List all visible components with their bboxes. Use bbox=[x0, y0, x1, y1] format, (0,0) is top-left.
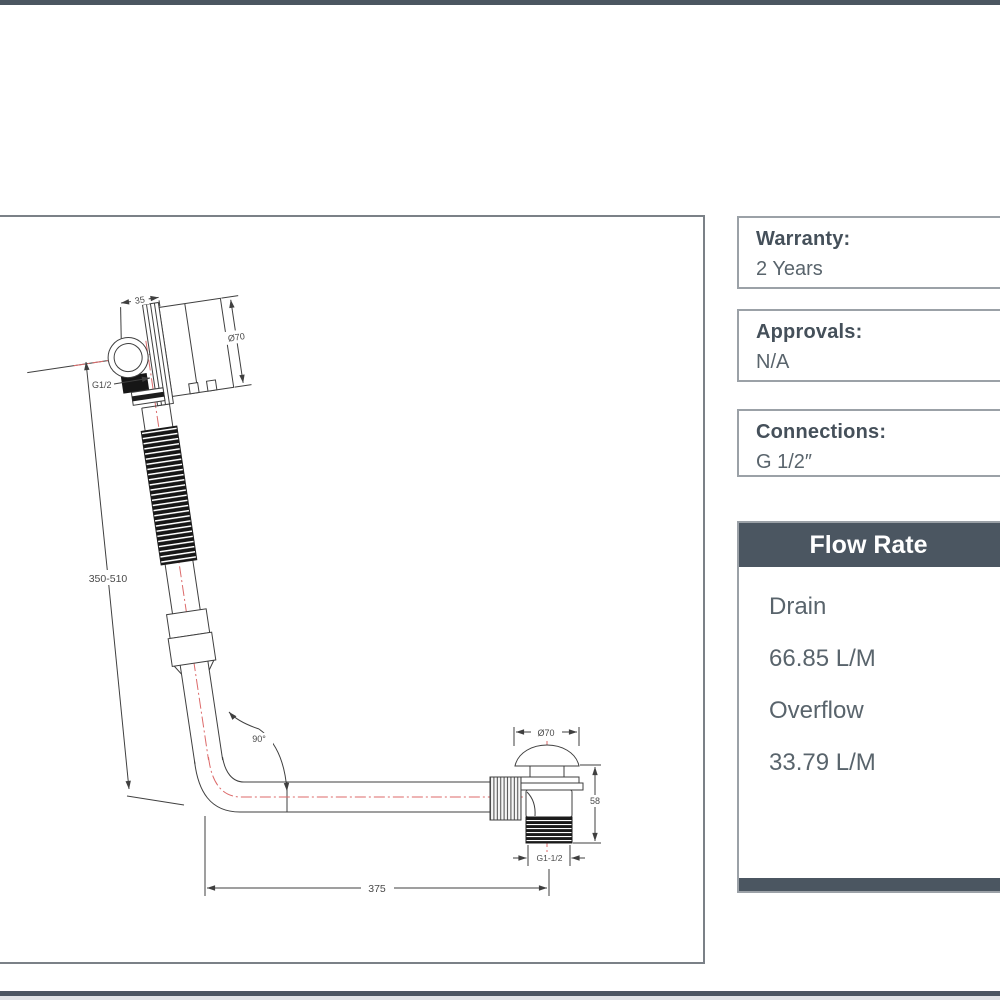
approvals-value: N/A bbox=[756, 351, 1000, 374]
approvals-label: Approvals: bbox=[756, 321, 1000, 344]
dim-35-label: 35 bbox=[134, 295, 145, 306]
knurled-nut bbox=[490, 777, 521, 820]
flow-overflow-label: Overflow bbox=[769, 697, 1000, 725]
dim-run-length: 375 bbox=[205, 816, 549, 896]
connections-box: Connections: G 1/2″ bbox=[737, 409, 1000, 477]
dim-375-label: 375 bbox=[368, 883, 386, 895]
connections-label: Connections: bbox=[756, 421, 1000, 444]
dim-58-label: 58 bbox=[590, 796, 600, 806]
flow-rate-box: Flow Rate Drain 66.85 L/M Overflow 33.79… bbox=[737, 521, 1000, 893]
flow-rate-body: Drain 66.85 L/M Overflow 33.79 L/M bbox=[739, 567, 1000, 878]
flow-overflow-value: 33.79 L/M bbox=[769, 749, 1000, 777]
flexible-hose bbox=[141, 426, 197, 565]
dim-drain-diameter-label: Ø70 bbox=[537, 728, 554, 738]
flow-rate-footer-bar bbox=[739, 878, 1000, 891]
flow-rate-title: Flow Rate bbox=[739, 523, 1000, 567]
drain-thread bbox=[526, 817, 572, 843]
warranty-value: 2 Years bbox=[756, 258, 1000, 281]
dim-90-label: 90° bbox=[252, 734, 266, 744]
approvals-box: Approvals: N/A bbox=[737, 309, 1000, 382]
pipe-coupling bbox=[165, 609, 218, 676]
flow-drain-label: Drain bbox=[769, 593, 1000, 621]
dim-g12-label: G1/2 bbox=[92, 380, 112, 390]
dim-drain-thread: G1-1/2 bbox=[513, 845, 585, 866]
dim-g1-12-label: G1-1/2 bbox=[537, 853, 563, 863]
horizontal-centerline bbox=[209, 757, 537, 797]
drain-body bbox=[526, 790, 572, 817]
drain-waste bbox=[490, 741, 583, 858]
pop-up-cap bbox=[515, 745, 579, 766]
elbow-and-horizontal-pipe bbox=[195, 757, 537, 812]
warranty-box: Warranty: 2 Years bbox=[737, 216, 1000, 289]
dim-350-510-label: 350-510 bbox=[89, 573, 128, 585]
warranty-label: Warranty: bbox=[756, 228, 1000, 251]
overflow-riser-assembly: 35 Ø70 bbox=[18, 279, 311, 780]
connections-value: G 1/2″ bbox=[756, 451, 1000, 474]
flow-drain-value: 66.85 L/M bbox=[769, 645, 1000, 673]
bottom-shadow-bar bbox=[0, 996, 1000, 1000]
dim-bend-angle: 90° bbox=[229, 712, 287, 791]
